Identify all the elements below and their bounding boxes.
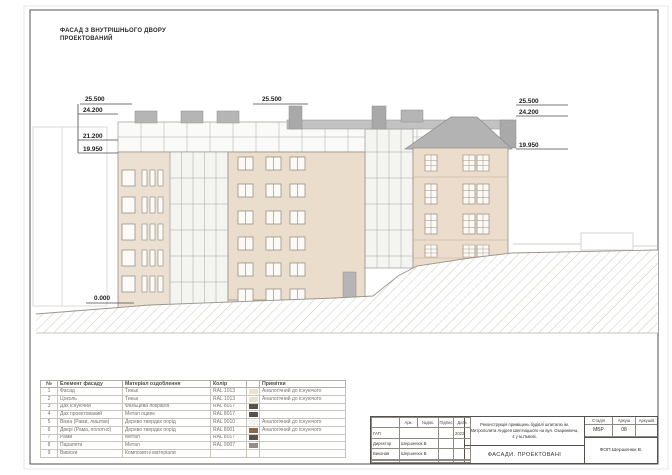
color-swatch (249, 412, 258, 417)
elevation-label: 25.500 (85, 96, 105, 103)
table-row: 7 Рами Метал RAL 8017 (41, 434, 346, 442)
table-row: 9 Вивіски Композитні матеріали (41, 450, 346, 458)
elevation-label: 19.950 (519, 142, 539, 149)
color-swatch (249, 443, 258, 448)
elevation-label: 24.200 (519, 109, 539, 116)
sheet-label: Аркуш (613, 417, 636, 425)
middle-facade (228, 152, 365, 302)
sheets-label: Аркушів (636, 417, 657, 425)
signature-row: ГАП 2022 (372, 428, 471, 438)
table-row: 2 Цоколь Тиньк RAL 1013 Аналогічний до і… (41, 395, 346, 403)
signature-row: Директор Шершенюк В. (372, 438, 471, 448)
materials-table-header: № Елемент фасаду Матеріал оздоблення Кол… (41, 381, 346, 388)
elevation-label: 24.200 (83, 107, 103, 114)
table-row: 6 Двері (Рама, полотно) Дерево твердих п… (41, 426, 346, 434)
elevation-label: 19.950 (83, 146, 103, 153)
elevation-label: 25.500 (519, 98, 539, 105)
sheets-total (636, 425, 657, 437)
stage-value: МБР (585, 425, 613, 437)
drawing-view-title: ФАСАД З ВНУТРІШНЬОГО ДВОРУ ПРОЕКТОВАНИЙ (60, 27, 166, 44)
table-row: 8 Парапети Метал RAL 9007 (41, 442, 346, 450)
elevation-label: 0.000 (94, 295, 110, 302)
drawing-title: ФАСАДИ. ПРОЕКТОВАНІ (465, 446, 584, 463)
color-swatch (249, 420, 258, 425)
drawing-sheet: 25.500 24.200 21.200 19.950 25.500 25.50… (0, 0, 672, 475)
color-swatch (249, 428, 258, 433)
elevation-label: 25.500 (262, 96, 282, 103)
right-building (405, 117, 516, 268)
signature-table: Арк. №док. Підпис Дата ГАП 2022 Директор… (371, 417, 465, 463)
table-row: 4 Дах проектований Метал оцинк. RAL 8017 (41, 411, 346, 419)
project-cell: Реконструкція приміщень будівлі шпиталю … (465, 417, 585, 463)
col-swatch (247, 381, 260, 388)
col-element: Елемент фасаду (58, 381, 123, 388)
col-doc: №док. (418, 418, 439, 428)
color-swatch (249, 435, 258, 440)
door (343, 272, 356, 300)
elevation-label: 21.200 (83, 133, 103, 140)
drawing-view-title-line1: ФАСАД З ВНУТРІШНЬОГО ДВОРУ (60, 27, 166, 35)
adjacent-building-outline (33, 127, 107, 306)
company-name: ФОП Шершенюк В. (585, 438, 657, 463)
color-swatch (249, 397, 258, 402)
signature-row (372, 461, 471, 463)
project-description: Реконструкція приміщень будівлі шпиталю … (465, 417, 584, 446)
table-row: 1 Фасад Тиньк RAL 1013 Аналогічний до іс… (41, 388, 346, 396)
adjacent-outline-right (513, 233, 658, 250)
curtain-wall-right (365, 129, 413, 268)
col-color: Колір (211, 381, 247, 388)
col-ark: Арк. (400, 418, 418, 428)
col-notes: Примітки (260, 381, 346, 388)
signature-row: Виконав Шершенюк В. (372, 449, 471, 459)
table-row: 5 Вікна (Рами, лиштви) Дерево твердих по… (41, 419, 346, 427)
title-block: Арк. №док. Підпис Дата ГАП 2022 Директор… (370, 416, 658, 464)
stage-label: Стадія (585, 417, 613, 425)
color-swatch (249, 389, 258, 394)
materials-table: № Елемент фасаду Матеріал оздоблення Кол… (40, 380, 346, 458)
sheet-number: 08 (613, 425, 636, 437)
table-row: 3 Дах існуючий Фальцева покрівля RAL 801… (41, 403, 346, 411)
color-swatch (249, 404, 258, 409)
col-sign: Підпис (439, 418, 454, 428)
col-num: № (41, 381, 58, 388)
col-material: Матеріал оздоблення (123, 381, 211, 388)
stage-cell: Стадія Аркуш Аркушів МБР 08 ФОП Шершенюк… (585, 417, 657, 463)
curtain-wall-left (170, 152, 228, 308)
drawing-view-title-line2: ПРОЕКТОВАНИЙ (60, 35, 166, 43)
color-swatch (249, 451, 258, 456)
